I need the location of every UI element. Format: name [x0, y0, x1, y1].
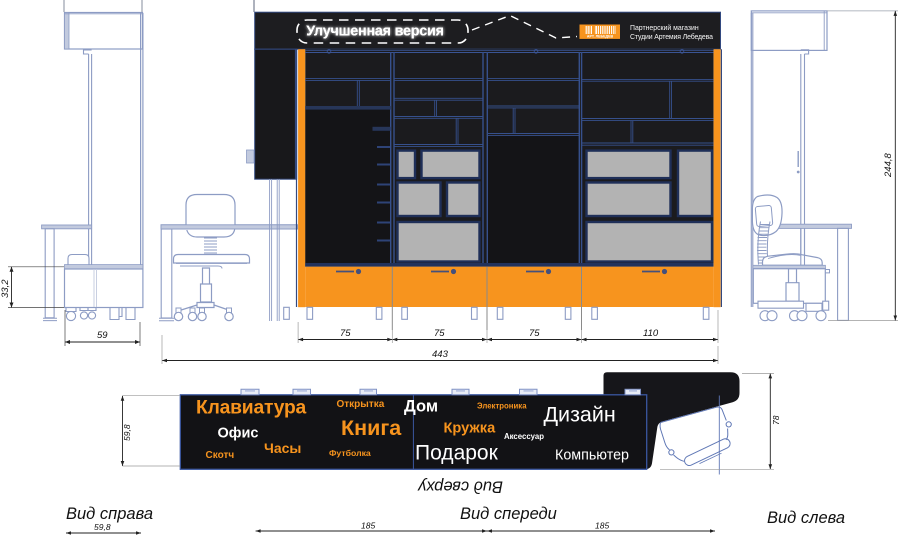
svg-text:185: 185 — [595, 521, 609, 531]
svg-text:Футболка: Футболка — [329, 448, 371, 458]
svg-text:Вид справа: Вид справа — [66, 505, 153, 523]
svg-text:185: 185 — [361, 521, 375, 531]
svg-text:33,2: 33,2 — [0, 279, 11, 298]
svg-text:59: 59 — [97, 330, 108, 341]
svg-text:Аксессуар: Аксессуар — [504, 432, 544, 441]
svg-text:75: 75 — [340, 328, 351, 339]
svg-text:Офис: Офис — [218, 426, 259, 442]
svg-text:Дом: Дом — [404, 398, 438, 416]
svg-text:Компьютер: Компьютер — [555, 448, 629, 464]
svg-text:Улучшенная версия: Улучшенная версия — [306, 24, 444, 40]
svg-text:78: 78 — [771, 415, 781, 425]
svg-text:75: 75 — [434, 328, 445, 339]
svg-text:Часы: Часы — [264, 440, 301, 456]
svg-text:Открытка: Открытка — [337, 399, 385, 410]
svg-text:Студии Артемия Лебедева: Студии Артемия Лебедева — [630, 33, 713, 41]
svg-text:АРТ. ЛЕБЕДЕВ: АРТ. ЛЕБЕДЕВ — [587, 35, 614, 39]
svg-text:Электроника: Электроника — [477, 402, 527, 411]
svg-text:Скотч: Скотч — [206, 450, 235, 461]
svg-text:Кружка: Кружка — [444, 421, 497, 437]
svg-text:244,8: 244,8 — [883, 153, 894, 178]
svg-text:443: 443 — [432, 349, 449, 360]
svg-text:59,8: 59,8 — [94, 522, 111, 532]
svg-text:Клавиатура: Клавиатура — [196, 398, 307, 419]
svg-text:75: 75 — [529, 328, 540, 339]
svg-text:Книга: Книга — [341, 416, 402, 440]
svg-text:110: 110 — [643, 328, 659, 339]
svg-text:Вид слева: Вид слева — [767, 509, 845, 527]
svg-text:Вид сверху: Вид сверху — [417, 478, 503, 496]
svg-text:Подарок: Подарок — [415, 442, 499, 465]
svg-text:Вид спереди: Вид спереди — [460, 505, 557, 523]
svg-text:59,8: 59,8 — [122, 424, 132, 441]
svg-text:Дизайн: Дизайн — [544, 403, 616, 427]
svg-text:Партнерский магазин: Партнерский магазин — [630, 24, 699, 32]
